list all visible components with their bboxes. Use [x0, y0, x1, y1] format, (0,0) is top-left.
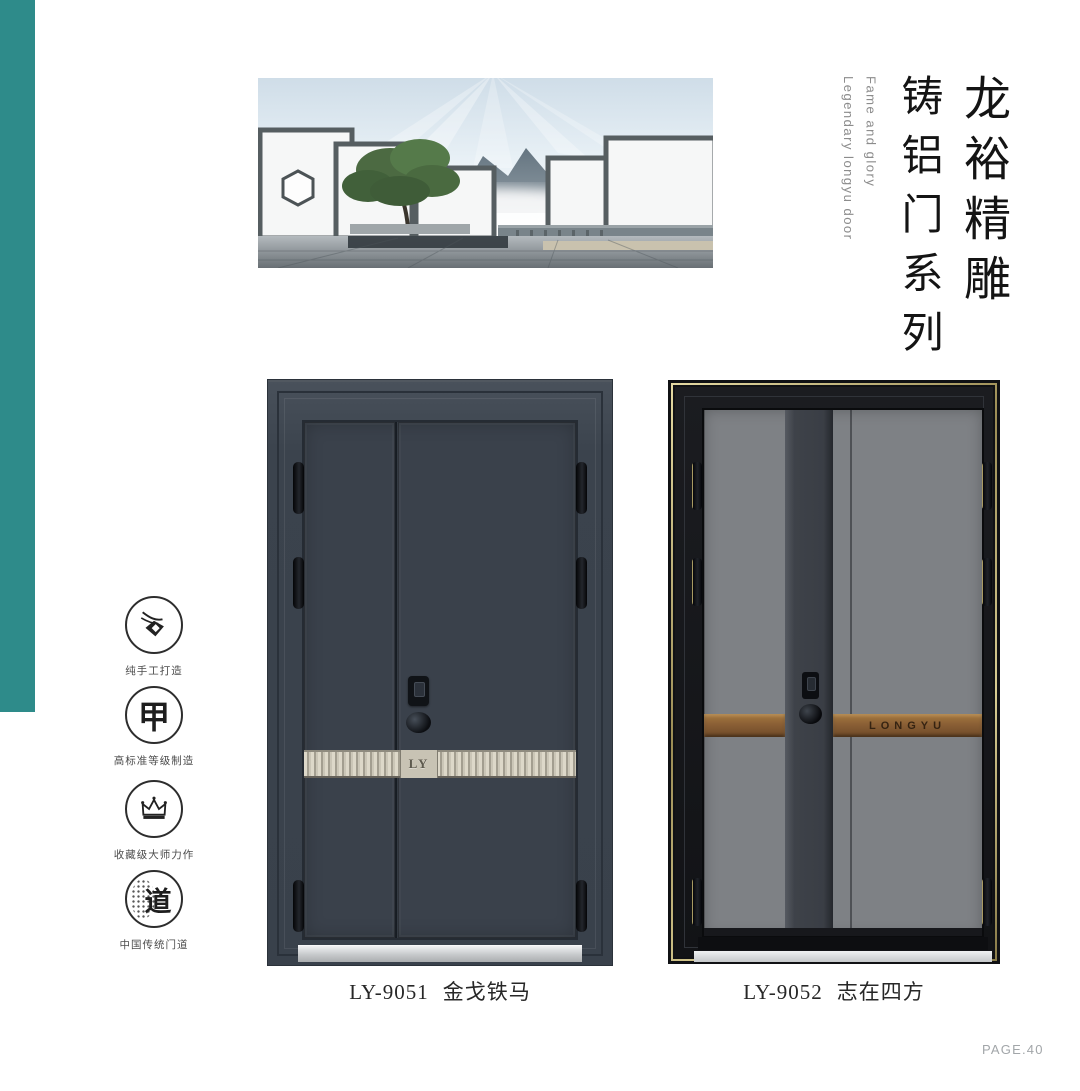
door1-hinge-right-middle — [576, 557, 587, 609]
door1-center-seam — [395, 422, 398, 938]
series-subtitle-en: Fame and glory Legendary longyu door — [836, 76, 882, 241]
hand-craft-icon-glyph — [137, 608, 171, 642]
feature-label: 收藏级大师力作 — [104, 847, 204, 862]
door2-threshold — [694, 951, 992, 962]
door1-smart-lock-keypad — [408, 676, 429, 706]
door1-leaves: LY — [302, 420, 578, 940]
door2-hinge-right-bottom — [982, 878, 992, 926]
series-title-primary: 龙裕精雕 — [948, 74, 1017, 314]
door2-copper-band-right: LONGYU — [833, 714, 982, 737]
door-product-ly9052: LONGYU — [668, 380, 1000, 964]
crown-icon-glyph — [137, 792, 171, 826]
door2-model: LY-9052 — [743, 980, 823, 1004]
series-subtitle-en-line2: Legendary longyu door — [836, 76, 859, 241]
feature-label: 纯手工打造 — [104, 663, 204, 678]
door1-decor-band: LY — [304, 750, 576, 778]
door1-hinge-right-top — [576, 462, 587, 514]
door1-hinge-right-bottom — [576, 880, 587, 932]
jia-grade-icon: 甲 — [125, 686, 183, 744]
door1-caption: LY-9051金戈铁马 — [268, 976, 612, 1006]
feature-handmade: 纯手工打造 — [104, 596, 204, 678]
door1-band-logo-plate: LY — [400, 750, 438, 778]
hero-landscape-photo — [258, 78, 713, 268]
hand-craft-icon — [125, 596, 183, 654]
jia-glyph: 甲 — [138, 692, 170, 738]
series-title-secondary: 铸铝门系列 — [888, 74, 949, 369]
door1-model: LY-9051 — [349, 980, 429, 1004]
feature-collection: 收藏级大师力作 — [104, 780, 204, 862]
feature-label: 中国传统门道 — [104, 937, 204, 952]
door1-hinge-left-middle — [293, 557, 304, 609]
door2-name: 志在四方 — [837, 980, 925, 1004]
door2-band-logo: LONGYU — [869, 720, 946, 732]
door2-lock-knob — [799, 704, 822, 724]
dao-icon: 道 — [125, 870, 183, 928]
accent-teal-bar — [0, 0, 35, 712]
door1-hinge-left-top — [293, 462, 304, 514]
feature-grade: 甲 高标准等级制造 — [104, 686, 204, 768]
landscape-illustration — [258, 78, 713, 268]
door2-smart-lock-keypad — [802, 672, 819, 699]
door2-leaves: LONGYU — [702, 408, 984, 938]
door2-hinge-left-top — [692, 462, 702, 510]
door1-name: 金戈铁马 — [443, 980, 531, 1004]
door2-leaf-groove-right — [850, 410, 852, 936]
door2-hinge-left-bottom — [692, 878, 702, 926]
door2-leaf-bottom-rail — [704, 928, 982, 936]
door2-hinge-right-middle — [982, 558, 992, 606]
door2-leaf-groove-left — [704, 410, 705, 936]
series-subtitle-en-line1: Fame and glory — [859, 76, 882, 241]
door2-caption: LY-9052志在四方 — [668, 976, 1000, 1006]
crown-icon — [125, 780, 183, 838]
feature-label: 高标准等级制造 — [104, 753, 204, 768]
door2-bottom-rail — [698, 937, 988, 950]
door1-hinge-left-bottom — [293, 880, 304, 932]
door-product-ly9051: LY — [268, 380, 612, 965]
door1-leaf-narrow — [304, 422, 395, 938]
door2-hinge-left-middle — [692, 558, 702, 606]
page-number: PAGE.40 — [982, 1042, 1044, 1057]
dao-glyph: 道 — [145, 880, 172, 919]
feature-tradition: 道 中国传统门道 — [104, 870, 204, 952]
door2-copper-band-left — [704, 714, 785, 737]
door1-lock-knob — [406, 712, 431, 733]
door2-hinge-right-top — [982, 462, 992, 510]
door1-threshold — [298, 945, 582, 962]
